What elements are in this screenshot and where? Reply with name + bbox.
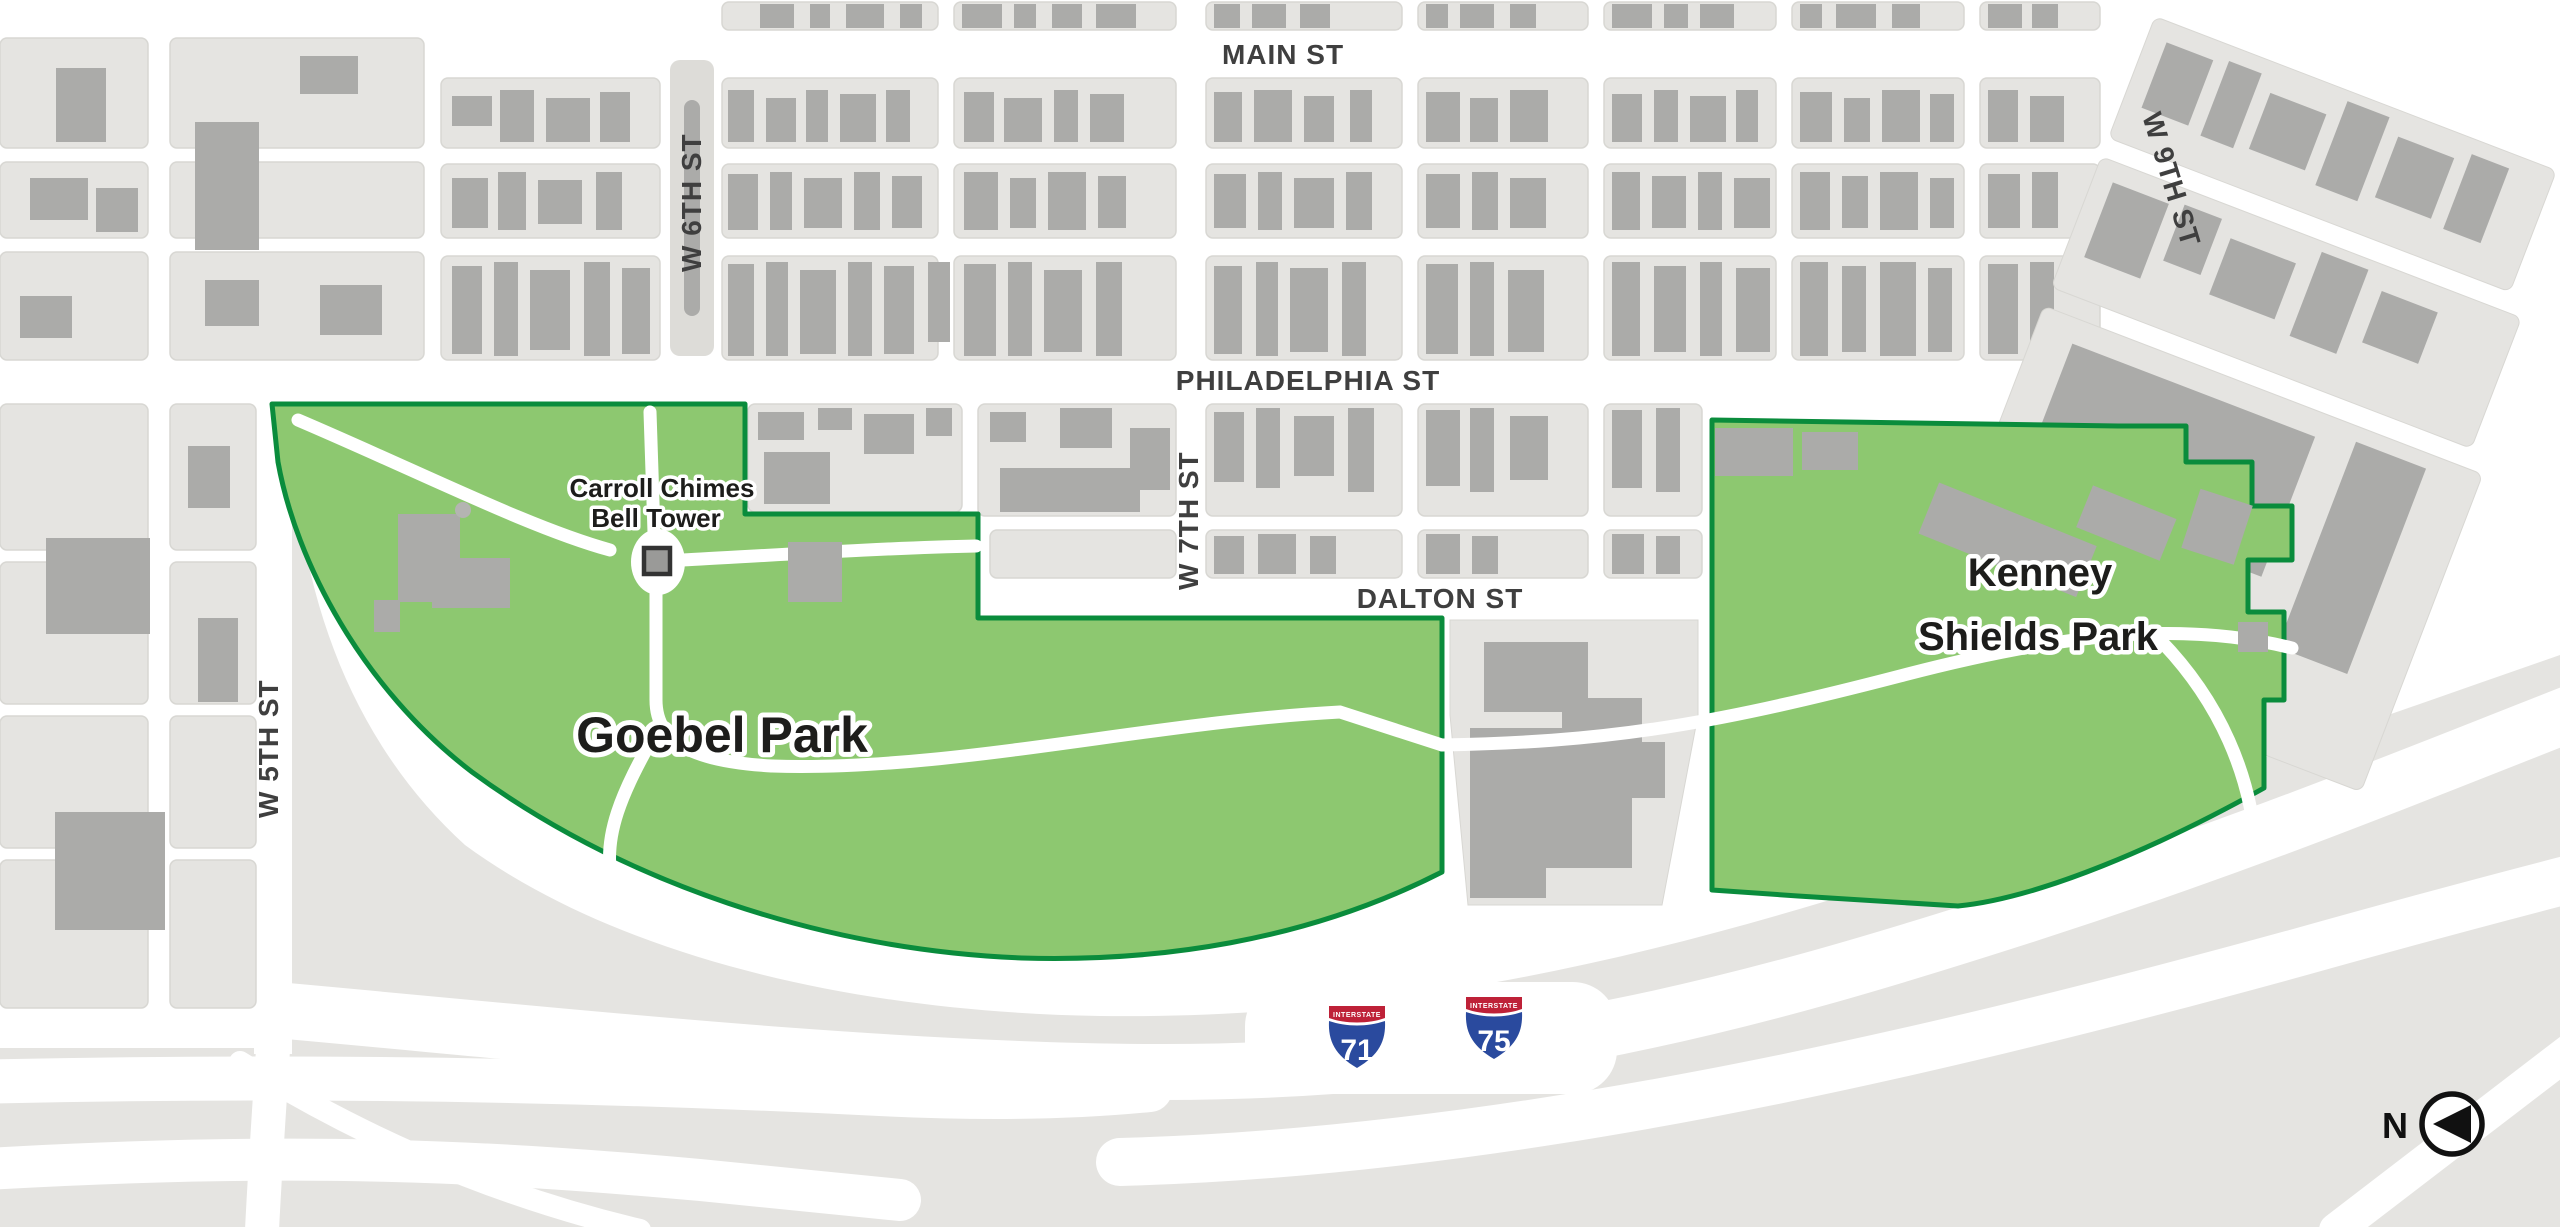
building-footprint <box>886 90 910 142</box>
city-block <box>990 530 1176 578</box>
building-footprint <box>884 266 914 354</box>
building-footprint <box>2238 622 2268 652</box>
building-footprint <box>764 452 830 504</box>
building-footprint <box>1654 90 1678 142</box>
building-footprint <box>1472 172 1498 230</box>
building-footprint <box>1612 94 1642 142</box>
building-footprint <box>1470 408 1494 492</box>
building-footprint <box>2032 172 2058 228</box>
building-footprint <box>205 280 259 326</box>
building-footprint <box>770 172 792 230</box>
building-footprint <box>1044 270 1082 352</box>
kenney-park-label-line2: Shields Park <box>1918 615 2159 659</box>
building-footprint <box>1472 536 1498 574</box>
building-footprint <box>56 68 106 142</box>
building-footprint <box>1252 4 1286 28</box>
building-footprint <box>1988 174 2020 228</box>
building-footprint <box>1836 4 1876 28</box>
building-footprint <box>1508 270 1544 352</box>
building-footprint <box>1214 92 1242 142</box>
building-footprint <box>1736 268 1770 352</box>
building-footprint <box>1664 4 1688 28</box>
building-footprint <box>846 4 884 28</box>
building-footprint <box>584 262 610 356</box>
building-footprint <box>760 4 794 28</box>
building-footprint <box>1426 92 1460 142</box>
building-footprint <box>600 92 630 142</box>
building-footprint <box>1470 262 1494 356</box>
building-footprint <box>30 178 88 220</box>
building-footprint <box>964 172 998 230</box>
building-footprint <box>452 266 482 354</box>
park-map: MAIN ST PHILADELPHIA ST DALTON ST W 5TH … <box>0 0 2560 1227</box>
building-footprint <box>494 262 518 356</box>
building-footprint <box>1256 262 1278 356</box>
building-footprint <box>1346 172 1372 230</box>
building-footprint <box>188 446 230 508</box>
building-footprint <box>1098 176 1126 228</box>
building-footprint <box>962 4 1002 28</box>
building-footprint <box>1008 262 1032 356</box>
interstate-number: 71 <box>1340 1034 1373 1067</box>
building-footprint <box>1880 262 1916 356</box>
building-footprint <box>1214 4 1240 28</box>
city-block <box>170 716 256 848</box>
building-footprint <box>432 558 510 608</box>
building-footprint <box>1652 176 1686 228</box>
interchange-pavement <box>1245 982 1617 1094</box>
building-footprint <box>1294 416 1334 476</box>
building-footprint <box>848 262 872 356</box>
building-footprint <box>530 270 570 350</box>
building-footprint <box>20 296 72 338</box>
building-footprint <box>1928 268 1952 352</box>
building-footprint <box>1612 4 1652 28</box>
building-footprint <box>622 268 650 354</box>
building-footprint <box>55 812 165 930</box>
building-footprint <box>1988 264 2018 354</box>
building-footprint <box>928 262 950 342</box>
building-footprint <box>2032 4 2058 28</box>
building-footprint <box>1010 178 1036 228</box>
building-footprint <box>926 408 952 436</box>
building-footprint <box>1800 262 1828 356</box>
building-footprint <box>1460 4 1494 28</box>
building-footprint <box>1214 536 1244 574</box>
building-footprint <box>320 285 382 335</box>
goebel-park-label: Goebel Park <box>576 707 868 763</box>
building-footprint <box>1000 468 1140 512</box>
building-footprint <box>1988 4 2022 28</box>
building-footprint <box>1700 4 1734 28</box>
building-footprint <box>1736 90 1758 142</box>
building-footprint <box>1310 536 1336 574</box>
building-footprint <box>1656 408 1680 492</box>
building-footprint <box>840 94 876 142</box>
building-footprint <box>1060 408 1112 448</box>
building-footprint <box>1612 410 1642 488</box>
building-footprint <box>854 172 880 230</box>
city-block <box>0 404 148 550</box>
building-footprint <box>1612 262 1640 356</box>
building-footprint <box>810 4 830 28</box>
building-footprint <box>1090 94 1124 142</box>
interstate-number: 75 <box>1477 1025 1510 1058</box>
building-footprint <box>1690 96 1726 142</box>
park-feature-dot <box>455 502 471 518</box>
building-footprint <box>990 412 1026 442</box>
building-footprint <box>1290 268 1328 352</box>
building-footprint <box>728 264 754 356</box>
philadelphia-st-label: PHILADELPHIA ST <box>1176 365 1440 396</box>
building-footprint <box>728 174 758 230</box>
building-footprint <box>1254 90 1292 142</box>
building-footprint <box>1054 90 1078 142</box>
map-canvas: MAIN ST PHILADELPHIA ST DALTON ST W 5TH … <box>0 0 2560 1227</box>
building-footprint <box>1426 410 1460 486</box>
building-footprint <box>1800 4 1822 28</box>
building-footprint <box>1294 178 1334 228</box>
building-footprint <box>1426 534 1460 574</box>
building-footprint <box>1698 172 1722 230</box>
building-footprint <box>1342 262 1366 356</box>
building-footprint <box>1214 266 1242 354</box>
building-footprint <box>1096 4 1136 28</box>
w6th-st-label: W 6TH ST <box>676 133 707 272</box>
w5th-st-label: W 5TH ST <box>253 679 284 818</box>
building-footprint <box>1052 4 1082 28</box>
building-footprint <box>900 4 922 28</box>
building-footprint <box>500 90 534 142</box>
building-footprint <box>1510 416 1548 480</box>
building-footprint <box>806 90 828 142</box>
dalton-st-label: DALTON ST <box>1357 583 1524 614</box>
building-footprint <box>818 408 852 430</box>
building-footprint <box>1700 262 1722 356</box>
w7th-st-label: W 7TH ST <box>1173 451 1204 590</box>
building-footprint <box>1844 98 1870 142</box>
building-footprint <box>1882 90 1920 142</box>
building-footprint <box>452 96 492 126</box>
building-footprint <box>1612 172 1640 230</box>
building-footprint <box>46 538 150 634</box>
building-footprint <box>1930 178 1954 228</box>
building-footprint <box>804 178 842 228</box>
building-footprint <box>1654 266 1686 352</box>
building-footprint <box>1880 172 1918 230</box>
building-footprint <box>452 178 488 228</box>
building-footprint <box>1014 4 1036 28</box>
building-footprint <box>964 264 996 356</box>
building-footprint <box>1048 172 1086 230</box>
building-footprint <box>1510 90 1548 142</box>
building-footprint <box>1300 4 1330 28</box>
building-footprint <box>1510 4 1536 28</box>
bell-tower-label-line1: Carroll Chimes <box>570 473 755 503</box>
ramp-road <box>0 1078 1150 1097</box>
bell-tower-label-line2: Bell Tower <box>591 503 721 533</box>
building-footprint <box>546 98 590 142</box>
building-footprint <box>1426 264 1458 354</box>
building-footprint <box>1842 266 1866 352</box>
building-footprint <box>1258 172 1282 230</box>
building-footprint <box>1510 178 1546 228</box>
building-footprint <box>198 618 238 702</box>
building-footprint <box>2030 96 2064 142</box>
building-footprint <box>374 600 400 632</box>
bell-tower-marker <box>644 548 670 574</box>
building-footprint <box>1734 178 1770 228</box>
building-footprint <box>1842 176 1868 228</box>
building-footprint <box>1802 432 1858 470</box>
building-footprint <box>1004 98 1042 142</box>
building-footprint <box>1096 262 1122 356</box>
building-footprint <box>766 98 796 142</box>
building-footprint <box>864 414 914 454</box>
building-footprint <box>1348 408 1374 492</box>
building-footprint <box>1304 96 1334 142</box>
building-footprint <box>596 172 622 230</box>
building-footprint <box>1930 94 1954 142</box>
building-footprint <box>892 176 922 228</box>
building-footprint <box>788 542 842 602</box>
building-footprint <box>1426 174 1460 228</box>
building-footprint <box>728 90 754 142</box>
building-footprint <box>1800 172 1830 230</box>
building-footprint <box>1214 412 1244 482</box>
building-footprint <box>1350 90 1372 142</box>
building-footprint <box>1258 534 1296 574</box>
building-footprint <box>498 172 526 230</box>
building-footprint <box>300 56 358 94</box>
building-footprint <box>1892 4 1920 28</box>
building-footprint <box>1715 428 1793 476</box>
building-footprint <box>1800 92 1832 142</box>
kenney-park-label-line1: Kenney <box>1968 551 2113 595</box>
building-footprint <box>1612 534 1644 574</box>
building-footprint <box>96 188 138 232</box>
building-footprint <box>1656 536 1680 574</box>
building-footprint <box>964 92 994 142</box>
building-footprint <box>538 180 582 224</box>
city-block <box>170 860 256 1008</box>
building-footprint <box>1426 4 1448 28</box>
interstate-banner-text: INTERSTATE <box>1333 1012 1381 1019</box>
building-footprint <box>758 412 804 440</box>
interstate-banner-text: INTERSTATE <box>1470 1003 1518 1010</box>
building-footprint <box>800 270 836 354</box>
building-footprint <box>1256 408 1280 488</box>
building-footprint <box>195 122 259 250</box>
building-footprint <box>1470 98 1498 142</box>
main-st-label: MAIN ST <box>1222 39 1344 70</box>
building-footprint <box>766 262 788 356</box>
building-footprint <box>1214 174 1246 228</box>
building-footprint <box>1988 90 2018 142</box>
north-label: N <box>2382 1105 2408 1146</box>
